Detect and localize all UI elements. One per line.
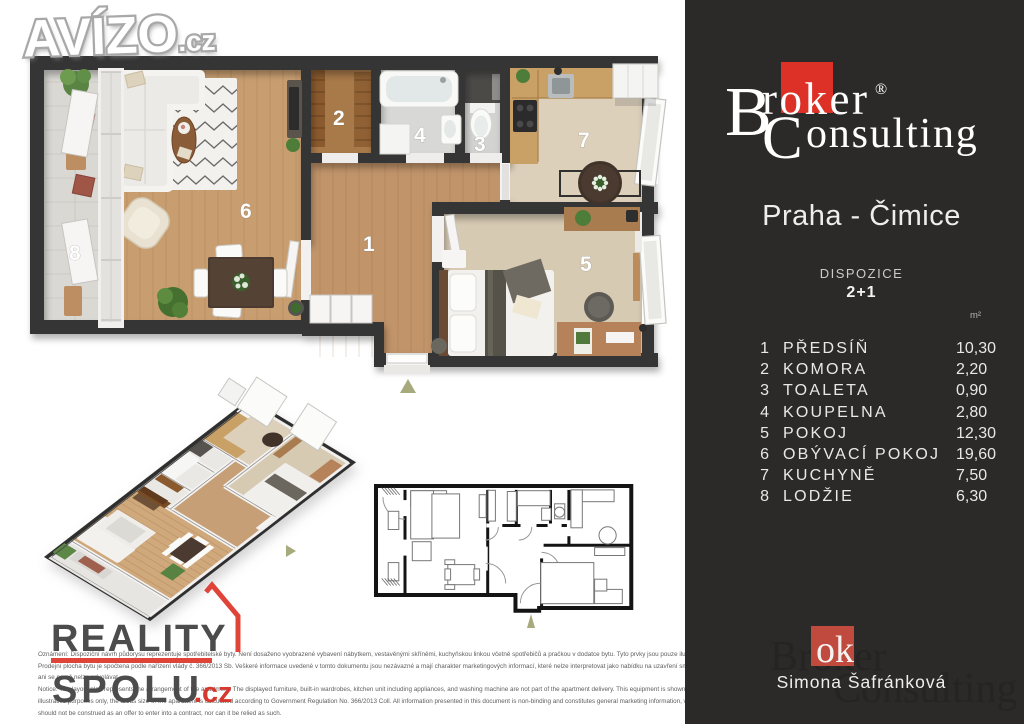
svg-text:®: ® bbox=[875, 81, 887, 98]
svg-text:C: C bbox=[762, 105, 803, 172]
svg-text:ok: ok bbox=[816, 629, 854, 671]
svg-text:onsulting: onsulting bbox=[806, 111, 979, 157]
